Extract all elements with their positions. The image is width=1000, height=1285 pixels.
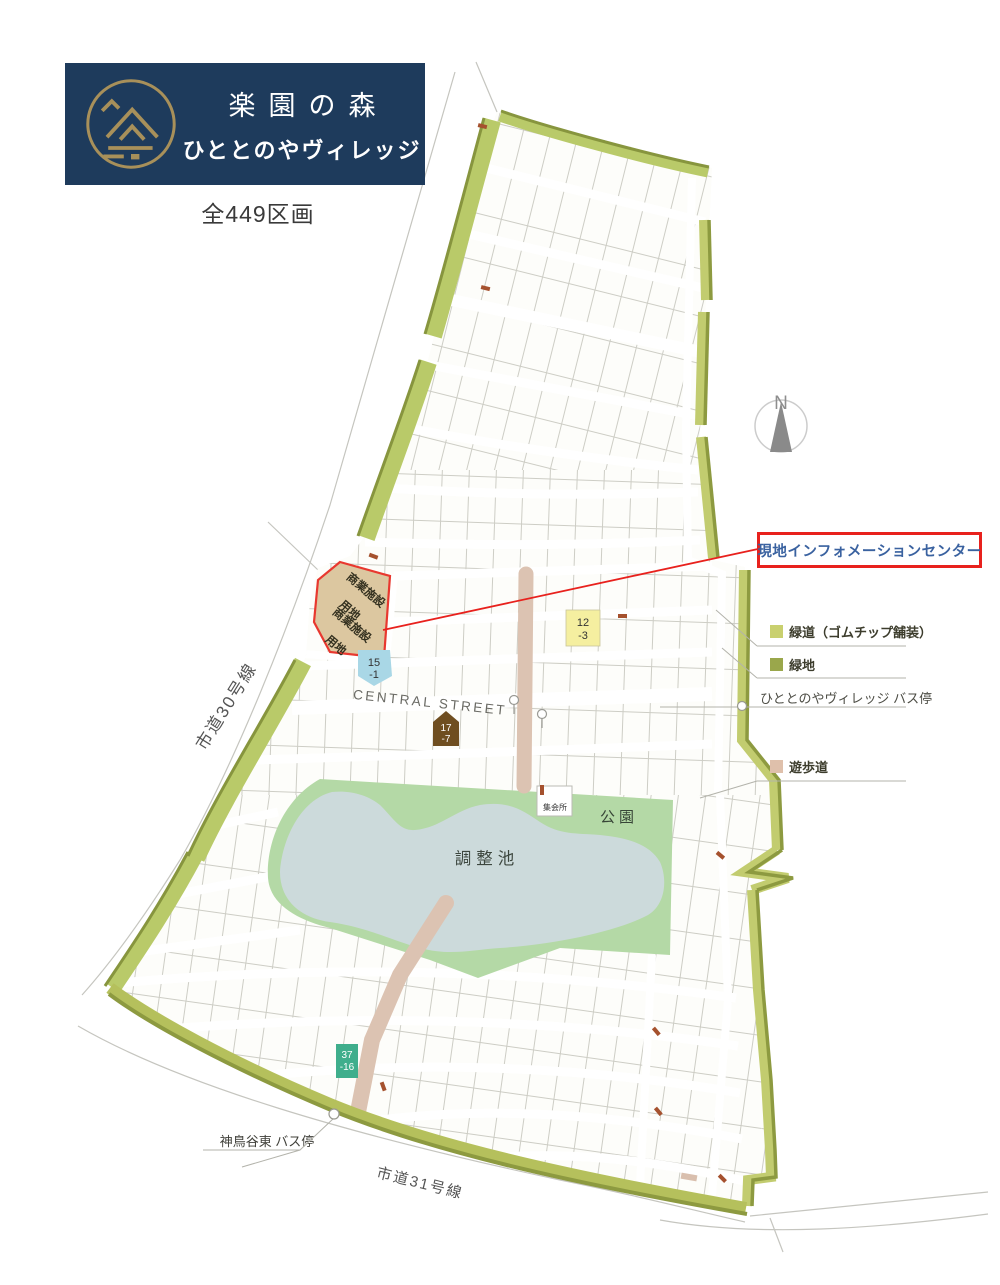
greenway-swatch	[770, 625, 783, 638]
lot-12-3: 12 -3	[566, 610, 600, 646]
lot-grid	[60, 100, 800, 1220]
east-bus-stop-label: 神鳥谷東 バス停	[220, 1134, 315, 1149]
svg-text:37: 37	[341, 1050, 353, 1061]
north-compass: N	[755, 393, 807, 452]
project-subtitle: ひととのやヴィレッジ	[182, 133, 421, 165]
svg-text:15: 15	[368, 657, 380, 669]
svg-text:12: 12	[577, 617, 589, 629]
info-center-label: 現地インフォメーションセンター	[757, 540, 981, 561]
village-bus-stop-dot	[738, 702, 747, 711]
legend-green-area: 緑地	[770, 655, 815, 674]
green-area-swatch	[770, 658, 783, 671]
park-label: 公園	[600, 809, 638, 826]
lot-37-16: 37 -16	[336, 1044, 358, 1078]
commercial-parcel: 商業施設 用地 商業施設 用地	[314, 562, 390, 658]
village-bus-stop-label: ひととのやヴィレッジ バス停	[760, 691, 932, 706]
project-title: 楽園の森	[229, 84, 389, 123]
logo-icon	[83, 76, 179, 172]
legend-walking-path: 遊歩道	[770, 757, 828, 776]
green-area-label: 緑地	[789, 655, 815, 674]
walking-path-label: 遊歩道	[789, 757, 828, 776]
project-banner: 楽園の森 ひととのやヴィレッジ	[65, 63, 425, 185]
road31-label: 市道31号線	[375, 1165, 465, 1203]
svg-text:17: 17	[440, 723, 452, 734]
meeting-hall-label: 集会所	[543, 802, 567, 812]
info-center-callout: 現地インフォメーションセンター	[757, 532, 982, 568]
east-bus-stop-dot	[329, 1109, 339, 1119]
meeting-hall-lot: 集会所	[537, 785, 572, 816]
pond-label: 調整池	[455, 849, 520, 868]
site-plan-map: 集会所	[0, 0, 1000, 1285]
svg-text:-16: -16	[340, 1062, 355, 1073]
svg-text:-7: -7	[442, 734, 451, 745]
svg-text:-3: -3	[578, 630, 588, 642]
greenway-label: 緑道（ゴムチップ舗装）	[789, 622, 932, 641]
legend-village-bus-stop: ひととのやヴィレッジ バス停	[760, 688, 932, 707]
svg-text:-1: -1	[369, 669, 379, 681]
total-lots-label: 全449区画	[193, 195, 323, 229]
legend-greenway: 緑道（ゴムチップ舗装）	[770, 622, 932, 641]
walking-path-swatch	[770, 760, 783, 773]
